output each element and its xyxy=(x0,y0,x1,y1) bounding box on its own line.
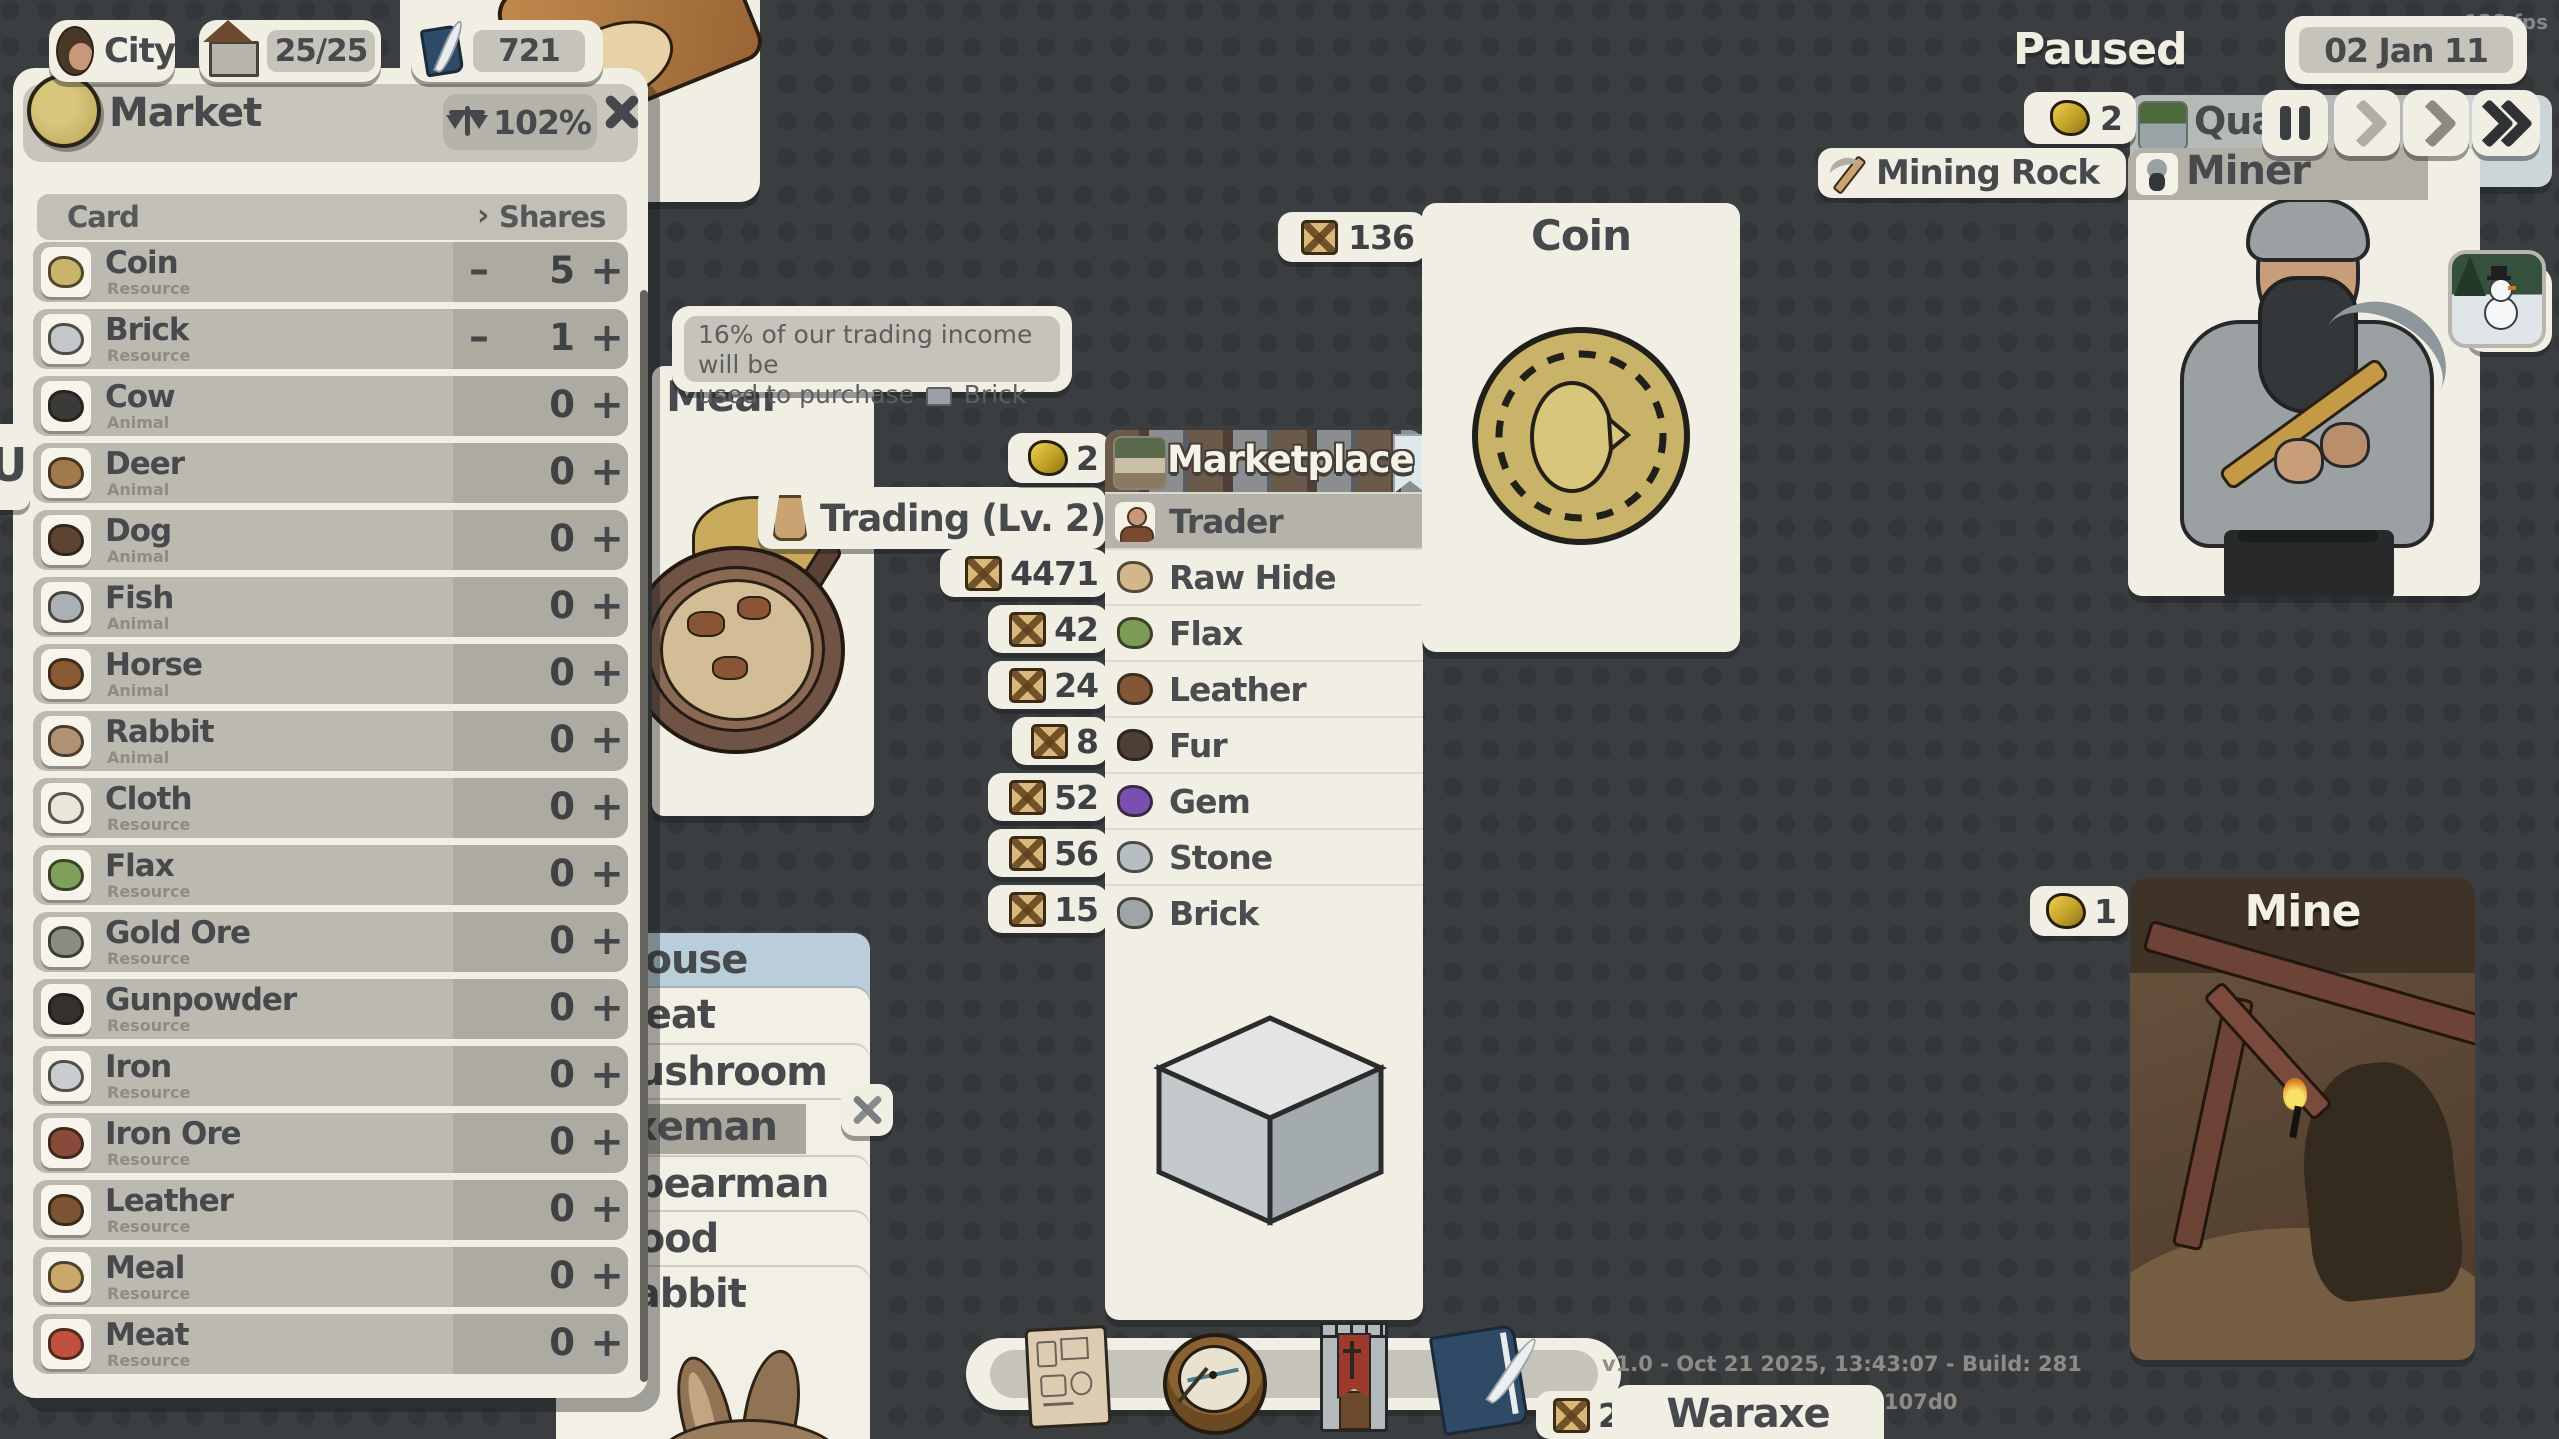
market-row-deer: DeerAnimal0+ xyxy=(33,443,628,503)
shares-count: 1 xyxy=(499,316,575,359)
increase-shares-button[interactable]: + xyxy=(586,717,628,763)
increase-shares-button[interactable]: + xyxy=(586,315,628,361)
brick-cube-art xyxy=(1153,1010,1388,1232)
bell-icon xyxy=(2050,100,2090,136)
miner-hand xyxy=(2274,438,2324,484)
pickaxe-icon xyxy=(1828,154,1866,192)
marketplace-card[interactable]: Marketplace TraderRaw HideFlaxLeatherFur… xyxy=(1105,430,1423,1320)
marketplace-row-label: Trader xyxy=(1169,502,1283,541)
crate-count-badge: 8 xyxy=(1012,717,1108,765)
shares-count: 0 xyxy=(499,986,575,1029)
card-name: Meat xyxy=(105,1317,189,1353)
crate-count: 8 xyxy=(1076,722,1098,761)
tooltip-body: 16% of our trading income will be used t… xyxy=(684,316,1060,382)
crate-count: 56 xyxy=(1054,834,1098,873)
marketplace-row-brick[interactable]: Brick xyxy=(1105,884,1423,942)
card-name: Leather xyxy=(105,1183,233,1219)
game-board: Qua Meal HouseMeatMushroomAxemanSpearman… xyxy=(0,0,2559,1439)
mine-title: Mine xyxy=(2130,886,2475,937)
shares-count: 0 xyxy=(499,919,575,962)
meal-chunk xyxy=(712,656,748,680)
marketplace-row-stone[interactable]: Stone xyxy=(1105,828,1423,886)
mine-card[interactable]: Mine xyxy=(2130,878,2475,1360)
shares-count: 0 xyxy=(499,584,575,627)
market-rate: 102% xyxy=(493,103,591,142)
card-name: Deer xyxy=(105,446,184,482)
marketplace-row-gem[interactable]: Gem xyxy=(1105,772,1423,830)
increase-shares-button[interactable]: + xyxy=(586,1052,628,1098)
fish-icon xyxy=(41,582,91,632)
increase-shares-button[interactable]: + xyxy=(586,918,628,964)
increase-shares-button[interactable]: + xyxy=(586,784,628,830)
bell-icon xyxy=(2046,893,2086,929)
date-text: 02 Jan 11 xyxy=(2299,27,2513,73)
ideas-badge: 721 xyxy=(411,20,603,82)
hash-fragment-right: 107d0 xyxy=(1884,1390,1957,1414)
edge-card-fragment: U xyxy=(0,424,30,510)
marketplace-row-label: Raw Hide xyxy=(1169,558,1336,597)
rabbit-icon xyxy=(41,716,91,766)
gem-icon xyxy=(1117,785,1153,817)
crate-icon xyxy=(1553,1398,1590,1433)
leather-icon xyxy=(41,1185,91,1235)
edge-fragment-text: U xyxy=(0,438,26,492)
card-name: Cow xyxy=(105,379,175,415)
miner-header-icon xyxy=(2136,153,2178,195)
pause-button[interactable] xyxy=(2262,90,2328,156)
crate-count-badge: 42 xyxy=(988,605,1108,653)
trader-icon xyxy=(1115,502,1155,542)
shares-count: 0 xyxy=(499,517,575,560)
torch-stick xyxy=(2289,1106,2301,1139)
card-type: Animal xyxy=(107,480,169,499)
miner-card[interactable]: Miner xyxy=(2128,148,2480,596)
market-row-gunpowder: GunpowderResource0+ xyxy=(33,979,628,1039)
marketplace-row-label: Leather xyxy=(1169,670,1306,709)
crate-icon xyxy=(1009,668,1046,703)
gold-count: 2 xyxy=(1076,439,1098,478)
increase-shares-button[interactable]: + xyxy=(586,1320,628,1366)
marketplace-row-label: Stone xyxy=(1169,838,1272,877)
fastest-button[interactable] xyxy=(2472,90,2540,156)
market-title: Market xyxy=(109,90,261,136)
column-shares-label: Shares xyxy=(499,200,605,234)
horse-icon xyxy=(41,649,91,699)
increase-shares-button[interactable]: + xyxy=(586,516,628,562)
meal-icon xyxy=(41,1252,91,1302)
card-type: Animal xyxy=(107,748,169,767)
crate-count: 52 xyxy=(1054,778,1098,817)
card-name: Cloth xyxy=(105,781,192,817)
card-type: Animal xyxy=(107,547,169,566)
market-columns-bar: Card › Shares xyxy=(37,194,627,240)
crossed-swords-icon xyxy=(851,1094,883,1126)
villager-avatar-icon xyxy=(56,26,94,76)
crate-count: 24 xyxy=(1054,666,1098,705)
card-name: Rabbit xyxy=(105,714,214,750)
gold-ore-icon xyxy=(41,917,91,967)
increase-shares-button[interactable]: + xyxy=(586,650,628,696)
increase-shares-button[interactable]: + xyxy=(586,1253,628,1299)
coin-count: 136 xyxy=(1348,218,1414,257)
meal-chunk xyxy=(737,596,771,620)
marketplace-row-fur[interactable]: Fur xyxy=(1105,716,1423,774)
marketplace-row-label: Fur xyxy=(1169,726,1227,765)
marketplace-thumbnail xyxy=(1113,436,1167,490)
sketch-mark xyxy=(1043,1402,1073,1407)
marketplace-row-trader[interactable]: Trader xyxy=(1105,492,1423,550)
mine-bell-badge: 1 xyxy=(2030,886,2128,936)
market-row-meat: MeatResource0+ xyxy=(33,1314,628,1374)
marketplace-row-leather[interactable]: Leather xyxy=(1105,660,1423,718)
dog-icon xyxy=(41,515,91,565)
card-type: Resource xyxy=(107,949,190,968)
flax-icon xyxy=(1117,617,1153,649)
meal-soup xyxy=(660,579,814,721)
card-type: Resource xyxy=(107,882,190,901)
shares-count: 0 xyxy=(499,450,575,493)
market-row-leather: LeatherResource0+ xyxy=(33,1180,628,1240)
marketplace-row-label: Flax xyxy=(1169,614,1242,653)
trading-tooltip: 16% of our trading income will be used t… xyxy=(672,306,1072,392)
card-type: Resource xyxy=(107,1150,190,1169)
card-name: Horse xyxy=(105,647,202,683)
brick-icon xyxy=(41,314,91,364)
deer-icon xyxy=(41,448,91,498)
market-row-brick: BrickResource–1+ xyxy=(33,309,628,369)
crate-icon xyxy=(1009,612,1046,647)
cow-icon xyxy=(41,381,91,431)
card-name: Meal xyxy=(105,1250,184,1286)
crate-icon xyxy=(1009,780,1046,815)
snowman-head xyxy=(2489,278,2513,302)
scales-icon xyxy=(449,106,485,138)
card-type: Animal xyxy=(107,413,169,432)
increase-shares-button[interactable]: + xyxy=(586,382,628,428)
increase-shares-button[interactable]: + xyxy=(586,851,628,897)
banner-sword-guard xyxy=(1343,1349,1361,1353)
gold-count-badge: 2 xyxy=(1008,433,1110,483)
decrease-shares-button[interactable]: – xyxy=(461,247,497,293)
card-name: Brick xyxy=(105,312,189,348)
population-badge: 25/25 xyxy=(199,20,381,82)
tree-icon xyxy=(2454,256,2486,296)
waraxe-card[interactable]: Waraxe xyxy=(1612,1385,1884,1439)
market-row-iron: IronResource0+ xyxy=(33,1046,628,1106)
coin-icon xyxy=(41,247,91,297)
shares-count: 0 xyxy=(499,1120,575,1163)
card-type: Resource xyxy=(107,1284,190,1303)
crate-icon xyxy=(1301,220,1338,255)
card-type: Resource xyxy=(107,1217,190,1236)
trading-icon xyxy=(772,495,808,541)
attack-button[interactable] xyxy=(841,1084,893,1136)
snowman-season-button[interactable] xyxy=(2448,250,2546,348)
shares-count: 0 xyxy=(499,718,575,761)
market-row-meal: MealResource0+ xyxy=(33,1247,628,1307)
market-row-cloth: ClothResource0+ xyxy=(33,778,628,838)
market-row-dog: DogAnimal0+ xyxy=(33,510,628,570)
meal-chunk xyxy=(687,611,725,637)
mine-bell-count: 1 xyxy=(2094,892,2116,931)
population-count: 25/25 xyxy=(267,30,375,72)
stone-icon xyxy=(1117,841,1153,873)
book-quill-icon xyxy=(419,24,464,77)
shares-count: 0 xyxy=(499,383,575,426)
miner-belt xyxy=(2238,530,2378,542)
market-coin-icon xyxy=(27,74,101,148)
increase-shares-button[interactable]: + xyxy=(586,583,628,629)
crate-icon xyxy=(1031,724,1068,759)
increase-shares-button[interactable]: + xyxy=(586,248,628,294)
cardpedia-button[interactable] xyxy=(1024,1325,1111,1429)
gunpowder-icon xyxy=(41,984,91,1034)
fast-icon xyxy=(2407,98,2456,147)
sketch-mark xyxy=(1036,1341,1057,1368)
card-type: Resource xyxy=(107,1083,190,1102)
market-row-fish: FishAnimal0+ xyxy=(33,577,628,637)
compass-pivot xyxy=(1209,1371,1217,1379)
column-card-label: Card xyxy=(67,200,139,234)
market-row-gold-ore: Gold OreResource0+ xyxy=(33,912,628,972)
snowman-nose xyxy=(2508,286,2516,290)
increase-shares-button[interactable]: + xyxy=(586,985,628,1031)
card-name: Iron xyxy=(105,1049,171,1085)
card-type: Animal xyxy=(107,681,169,700)
card-name: Dog xyxy=(105,513,171,549)
card-name: Gold Ore xyxy=(105,915,250,951)
shares-count: 0 xyxy=(499,1053,575,1096)
meat-icon xyxy=(41,1319,91,1369)
market-row-cow: CowAnimal0+ xyxy=(33,376,628,436)
paused-indicator: Paused xyxy=(2013,24,2187,75)
fur-icon xyxy=(1117,729,1153,761)
shares-count: 5 xyxy=(499,249,575,292)
shares-count: 0 xyxy=(499,785,575,828)
banner-sword xyxy=(1350,1341,1354,1379)
shares-count: 0 xyxy=(499,852,575,895)
coin-card[interactable]: Coin xyxy=(1422,203,1740,652)
tower-door xyxy=(1339,1391,1371,1430)
version-text: v1.0 - Oct 21 2025, 13:43:07 - Build: 28… xyxy=(1602,1352,2082,1376)
market-rate-pill: 102% xyxy=(443,94,597,150)
crate-count-badge: 52 xyxy=(988,773,1108,821)
crate-count-badge: 24 xyxy=(988,661,1108,709)
card-type: Animal xyxy=(107,614,169,633)
coin-count-badge: 136 xyxy=(1278,212,1426,262)
compass-button[interactable] xyxy=(1163,1333,1267,1435)
card-name: Flax xyxy=(105,848,174,884)
tower-banner xyxy=(1337,1333,1371,1399)
meal-card[interactable]: Meal xyxy=(652,366,874,816)
house-icon xyxy=(209,41,259,77)
market-row-horse: HorseAnimal0+ xyxy=(33,644,628,704)
quarry-bell-count: 2 xyxy=(2100,99,2122,138)
tooltip-line1: 16% of our trading income will be xyxy=(698,320,1046,380)
sketch-mark xyxy=(1060,1337,1089,1360)
crate-count-badge: 56 xyxy=(988,829,1108,877)
snowman-hat-brim xyxy=(2487,276,2511,280)
card-name: Fish xyxy=(105,580,173,616)
iron-ore-icon xyxy=(41,1118,91,1168)
chevron-right-icon: › xyxy=(477,198,488,233)
market-row-coin: CoinResource–5+ xyxy=(33,242,628,302)
scrollbar[interactable] xyxy=(640,290,648,1382)
market-panel: Market 102% Card › Shares CoinResource–5… xyxy=(13,68,648,1398)
fast-button[interactable] xyxy=(2403,90,2469,156)
mining-rock-text: Mining Rock xyxy=(1876,153,2099,193)
market-row-rabbit: RabbitAnimal0+ xyxy=(33,711,628,771)
market-row-flax: FlaxResource0+ xyxy=(33,845,628,905)
crate-count: 42 xyxy=(1054,610,1098,649)
card-type: Resource xyxy=(107,1016,190,1035)
miner-headscarf xyxy=(2246,198,2370,262)
iron-icon xyxy=(41,1051,91,1101)
shares-count: 0 xyxy=(499,1187,575,1230)
marketplace-row-label: Brick xyxy=(1169,894,1258,933)
city-label: City xyxy=(104,31,175,71)
flax-icon xyxy=(41,850,91,900)
play-button[interactable] xyxy=(2334,90,2400,156)
crate-count-badge: 15 xyxy=(988,885,1108,933)
market-row-iron-ore: Iron OreResource0+ xyxy=(33,1113,628,1173)
shares-count: 0 xyxy=(499,1254,575,1297)
date-display: 02 Jan 11 xyxy=(2285,16,2527,84)
pause-icon xyxy=(2299,106,2310,140)
increase-shares-button[interactable]: + xyxy=(586,449,628,495)
sketch-mark xyxy=(1070,1371,1093,1396)
trading-label-text: Trading (Lv. 2) xyxy=(820,497,1105,540)
brick-icon xyxy=(926,387,952,406)
ideas-count: 721 xyxy=(473,30,585,72)
trading-level-label: Trading (Lv. 2) xyxy=(758,487,1106,549)
waraxe-title: Waraxe xyxy=(1612,1391,1884,1437)
marketplace-row-raw-hide[interactable]: Raw Hide xyxy=(1105,548,1423,606)
card-name: Coin xyxy=(105,245,178,281)
card-name: Iron Ore xyxy=(105,1116,241,1152)
shares-count: 0 xyxy=(499,651,575,694)
marketplace-row-flax[interactable]: Flax xyxy=(1105,604,1423,662)
close-icon[interactable] xyxy=(601,92,641,132)
increase-shares-button[interactable]: + xyxy=(586,1119,628,1165)
crate-icon xyxy=(1009,892,1046,927)
crate-count-badge: 4471 xyxy=(940,549,1108,597)
mining-rock-label: Mining Rock xyxy=(1818,148,2126,198)
card-type: Resource xyxy=(107,346,190,365)
raw-hide-icon xyxy=(1117,561,1153,593)
gold-icon xyxy=(1028,440,1068,476)
play-icon xyxy=(2338,98,2387,147)
increase-shares-button[interactable]: + xyxy=(586,1186,628,1232)
tooltip-line2: used to purchase Brick xyxy=(698,380,1046,410)
marketplace-title: Marketplace xyxy=(1167,438,1414,481)
card-name: Gunpowder xyxy=(105,982,296,1018)
decrease-shares-button[interactable]: – xyxy=(461,314,497,360)
crate-icon xyxy=(1009,836,1046,871)
quarry-thumbnail xyxy=(2138,101,2188,151)
pause-icon xyxy=(2280,106,2291,140)
marketplace-row-label: Gem xyxy=(1169,782,1250,821)
coin-card-title: Coin xyxy=(1422,211,1740,260)
sketch-mark xyxy=(1040,1374,1067,1397)
card-type: Resource xyxy=(107,815,190,834)
card-type: Resource xyxy=(107,1351,190,1370)
crate-count: 4471 xyxy=(1010,554,1098,593)
quarry-bell-badge: 2 xyxy=(2024,92,2136,144)
crate-count: 15 xyxy=(1054,890,1098,929)
miner-hand xyxy=(2320,422,2370,468)
cloth-icon xyxy=(41,783,91,833)
city-button[interactable]: City xyxy=(49,20,175,82)
miner-art xyxy=(2128,200,2480,596)
leather-icon xyxy=(1117,673,1153,705)
card-type: Resource xyxy=(107,279,190,298)
brick-icon xyxy=(1117,897,1153,929)
coin-art xyxy=(1466,321,1696,551)
shares-count: 0 xyxy=(499,1321,575,1364)
quests-tower-button[interactable] xyxy=(1320,1322,1388,1432)
crate-icon xyxy=(965,556,1002,591)
